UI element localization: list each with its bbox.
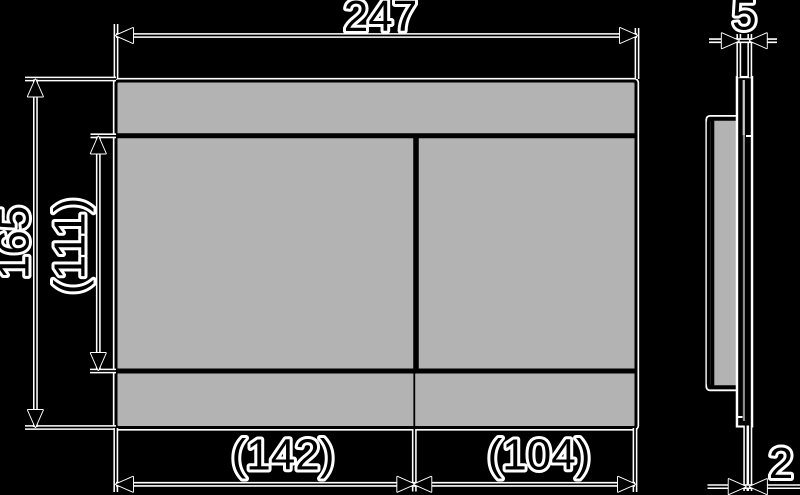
svg-text:247: 247 [344, 0, 417, 41]
svg-text:165: 165 [0, 206, 39, 279]
svg-text:(142): (142) [232, 431, 335, 480]
svg-text:(104): (104) [488, 431, 591, 480]
svg-text:2: 2 [769, 439, 793, 488]
svg-text:(111): (111) [46, 198, 95, 294]
svg-text:5: 5 [732, 0, 756, 40]
